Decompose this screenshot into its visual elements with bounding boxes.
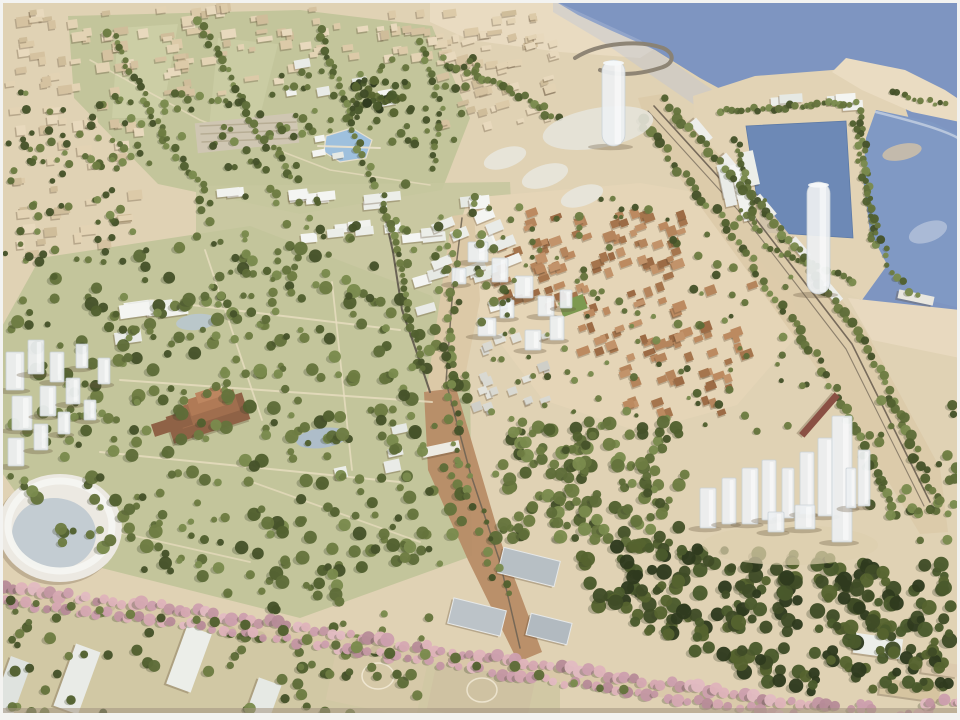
city-model-photo	[0, 0, 960, 720]
model-scene	[0, 0, 960, 720]
